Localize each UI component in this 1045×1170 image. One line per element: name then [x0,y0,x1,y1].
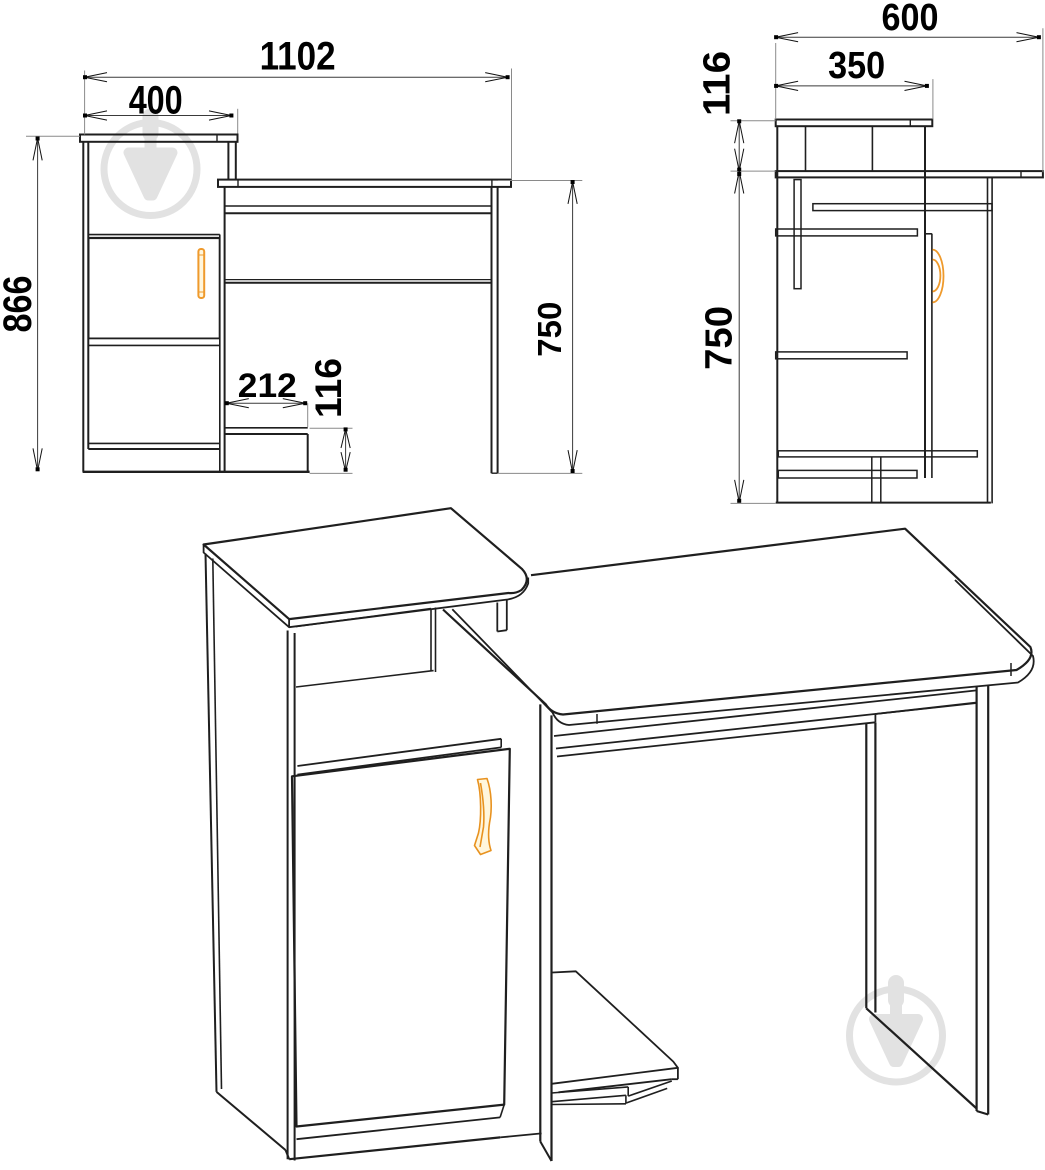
svg-text:116: 116 [697,51,739,116]
svg-text:212: 212 [238,367,297,405]
svg-text:400: 400 [129,79,183,123]
svg-text:116: 116 [308,358,349,418]
svg-text:750: 750 [531,302,568,357]
svg-text:750: 750 [699,306,741,370]
svg-text:866: 866 [0,276,40,333]
svg-text:350: 350 [828,45,885,87]
svg-text:600: 600 [882,0,939,39]
svg-text:1102: 1102 [260,35,336,79]
